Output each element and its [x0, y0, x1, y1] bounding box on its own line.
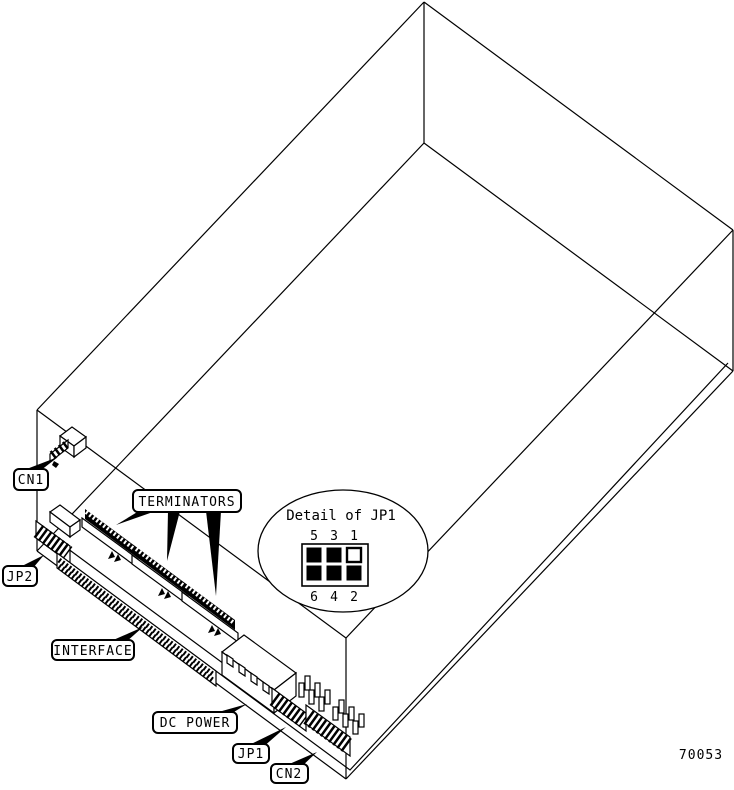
detail-title: Detail of JP1: [286, 508, 396, 524]
jp2-label-text: JP2: [7, 570, 33, 585]
cn2-pin: [353, 721, 358, 734]
pin-label-5: 5: [310, 529, 318, 544]
edge-top-left: [37, 2, 424, 410]
cn2-pin: [333, 707, 338, 720]
pin-label-2: 2: [350, 590, 358, 605]
pin-label-4: 4: [330, 590, 338, 605]
jp1-pin: [315, 683, 320, 697]
pin1-mark: [208, 625, 215, 633]
edge-top-right: [424, 2, 733, 230]
edge-bottom-back-right: [424, 143, 733, 371]
hardware-diagram: Detail of JP1 5 3 1 6 4 2 CN1 JP2 TERMIN…: [0, 0, 734, 790]
enclosure-wireframe: [37, 2, 733, 779]
cn2-pin: [359, 714, 364, 727]
jp1-detail-pin-2: [347, 566, 361, 580]
pin-label-1: 1: [350, 529, 358, 544]
jp1-pin: [325, 690, 330, 704]
jp1-detail-pin-1: [347, 548, 361, 562]
cn2-label-text: CN2: [276, 767, 302, 782]
pin-label-6: 6: [310, 590, 318, 605]
callout-jp2: JP2: [3, 555, 44, 586]
jp1-detail-pin-4: [327, 566, 341, 580]
callout-cn2: CN2: [271, 752, 317, 783]
jp1-pin: [319, 697, 324, 711]
callout-cn1: CN1: [14, 457, 58, 490]
interface-label-text: INTERFACE: [53, 644, 132, 659]
pin-label-3: 3: [330, 529, 338, 544]
terminators-leader-arrow-2: [167, 511, 180, 561]
drive-enclosure-figure: Detail of JP1 5 3 1 6 4 2 CN1 JP2 TERMIN…: [0, 0, 734, 790]
cn1-connector: [50, 427, 86, 468]
terminator-3: [182, 583, 238, 642]
jp1-label-text: JP1: [238, 747, 264, 762]
callout-jp1: JP1: [233, 727, 286, 763]
figure-number: 70053: [679, 748, 723, 763]
cn2-pin: [339, 700, 344, 713]
jp1-detail-callout: Detail of JP1 5 3 1 6 4 2: [258, 490, 428, 612]
interface-edge-connector: [57, 553, 216, 686]
jp1-pin: [305, 676, 310, 690]
jp1-detail-pin-5: [307, 548, 321, 562]
pin1-mark: [158, 588, 165, 596]
dc-power-label-text: DC POWER: [160, 716, 231, 731]
jp1-detail-pin-6: [307, 566, 321, 580]
terminators-leader-arrow-3: [206, 511, 221, 596]
cn2-pin: [349, 707, 354, 720]
pin1-mark: [108, 551, 115, 559]
terminator-2: [132, 546, 188, 605]
cn1-label-text: CN1: [18, 473, 44, 488]
terminators-label-text: TERMINATORS: [138, 495, 235, 510]
jp1-pin: [299, 683, 304, 697]
terminators-leader-arrow-1: [116, 511, 153, 525]
callout-interface: INTERFACE: [52, 627, 143, 660]
cn2-pin: [343, 714, 348, 727]
callout-labels: CN1 JP2 TERMINATORS INTERFACE DC POWER: [3, 457, 317, 783]
callout-dc-power: DC POWER: [153, 704, 247, 733]
jp1-detail-pin-3: [327, 548, 341, 562]
cn2-connector: [306, 700, 364, 756]
jp1-pin: [309, 690, 314, 704]
